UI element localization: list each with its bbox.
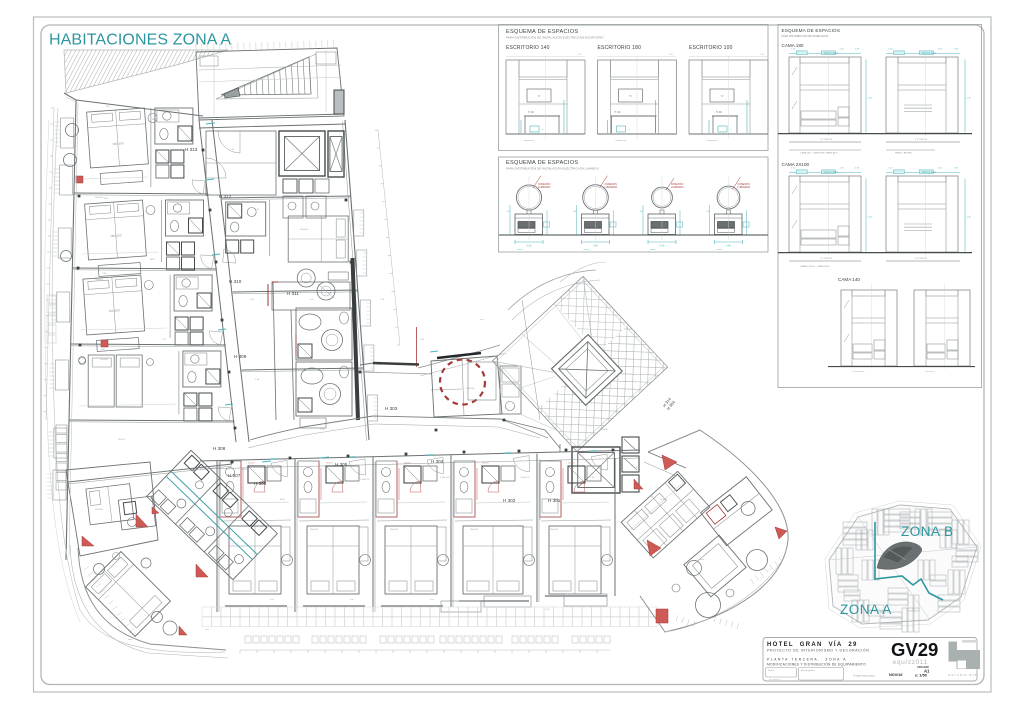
svg-text:180x200: 180x200 — [108, 308, 120, 313]
svg-text:1.40x0.70: 1.40x0.70 — [520, 477, 530, 479]
svg-text:CAMA 140: CAMA 140 — [838, 277, 860, 282]
svg-text:H 302: H 302 — [503, 498, 516, 503]
svg-text:MOD: MOD — [152, 119, 157, 121]
svg-text:H 305: H 305 — [335, 462, 348, 467]
svg-text:GV29: GV29 — [891, 639, 938, 660]
svg-text:H. 90: H. 90 — [615, 111, 621, 114]
svg-text:xxxxxxx xx: xxxxxxx xx — [707, 140, 718, 142]
svg-text:ZONA B: ZONA B — [901, 524, 954, 539]
svg-text:ESQUEMA DE ESPACIOS: ESQUEMA DE ESPACIOS — [782, 28, 841, 33]
svg-text:H 310: H 310 — [229, 279, 242, 284]
svg-text:xxxxxxx xx: xxxxxxx xx — [616, 140, 627, 142]
svg-text:180x200: 180x200 — [470, 529, 479, 531]
svg-text:0.60: 0.60 — [660, 245, 665, 248]
svg-text:PARA DISTRIBUCIÓN DE INSTALACI: PARA DISTRIBUCIÓN DE INSTALACIÓN ELÉCTRI… — [506, 35, 604, 40]
svg-text:H. 90: H. 90 — [716, 111, 722, 114]
svg-text:ESCRITORIO 100: ESCRITORIO 100 — [689, 45, 733, 51]
svg-text:© xxxxx xxxxx xxxxx: © xxxxx xxxxx xxxxx — [853, 675, 875, 678]
svg-text:VERDULERA: VERDULERA — [823, 52, 838, 55]
svg-text:160x200: 160x200 — [95, 509, 104, 511]
svg-text:VERDULERA: VERDULERA — [823, 171, 838, 174]
svg-text:ZONA A: ZONA A — [840, 602, 892, 617]
svg-text:H 313: H 313 — [185, 147, 198, 152]
svg-text:PANEL LATERAL: PANEL LATERAL — [895, 152, 913, 155]
svg-text:0.60: 0.60 — [726, 245, 731, 248]
svg-text:CAMA 180 + CABECERO PANELADO: CAMA 180 + CABECERO PANELADO — [800, 152, 838, 155]
svg-text:H 307: H 307 — [228, 473, 241, 478]
svg-text:H 306: H 306 — [254, 481, 267, 486]
svg-text:180x200: 180x200 — [310, 529, 319, 531]
svg-text:equ/zz011: equ/zz011 — [893, 659, 928, 666]
svg-text:x.x xxx xx: x.x xxx xx — [925, 371, 935, 373]
svg-text:140x70: 140x70 — [404, 463, 411, 465]
svg-text:1.40x0.70: 1.40x0.70 — [440, 477, 450, 479]
svg-text:180x200: 180x200 — [95, 197, 104, 199]
svg-text:H 304: H 304 — [431, 459, 444, 464]
svg-text:CONEXIÓN: CONEXIÓN — [671, 183, 684, 186]
svg-text:MOD: MOD — [280, 499, 285, 501]
svg-text:Fecha: Fecha — [768, 670, 775, 672]
svg-text:PLANTA TERCERA. ZONA A: PLANTA TERCERA. ZONA A — [767, 658, 847, 662]
svg-text:ESQUEMA DE ESPACIOS: ESQUEMA DE ESPACIOS — [506, 160, 578, 166]
svg-text:xxxxx: xxxxx — [717, 249, 723, 251]
svg-text:H 303: H 303 — [385, 406, 398, 411]
svg-text:H 301: H 301 — [548, 498, 561, 503]
svg-text:LUMINARIA: LUMINARIA — [738, 186, 751, 189]
svg-text:H 311: H 311 — [287, 291, 299, 296]
svg-text:CAMA 2X100: CAMA 2X100 — [782, 162, 810, 167]
svg-text:1.5 TOM TB: 1.5 TOM TB — [820, 258, 832, 260]
svg-text:e: 1/50: e: 1/50 — [915, 674, 927, 678]
svg-text:H 308: H 308 — [213, 446, 226, 451]
svg-text:1.5 TOM TB: 1.5 TOM TB — [820, 139, 832, 141]
svg-text:CONEXIÓN: CONEXIÓN — [538, 183, 551, 186]
svg-text:xxx xxxxxxx: xxx xxxxxxx — [769, 679, 781, 681]
svg-text:ESCRITORIO 140: ESCRITORIO 140 — [506, 45, 550, 51]
svg-text:180x200: 180x200 — [112, 141, 124, 146]
svg-text:180x200: 180x200 — [95, 111, 104, 113]
svg-text:140x70: 140x70 — [118, 439, 126, 441]
svg-text:180x190: 180x190 — [466, 388, 475, 390]
svg-text:CONEXIÓN: CONEXIÓN — [738, 183, 751, 186]
svg-text:1.5 TOM TB: 1.5 TOM TB — [915, 258, 927, 260]
svg-text:LUMINARIA: LUMINARIA — [671, 186, 684, 189]
svg-text:HOTEL GRAN VÍA 29: HOTEL GRAN VÍA 29 — [767, 640, 858, 648]
svg-text:140x70: 140x70 — [248, 463, 255, 465]
svg-text:MOD: MOD — [150, 259, 155, 261]
svg-text:140x70: 140x70 — [660, 499, 668, 501]
svg-text:MONTA: MONTA — [600, 428, 608, 431]
svg-text:VERDULERA: VERDULERA — [921, 171, 936, 174]
svg-text:MODIFICACIONES Y DISTRIBUCIÓN: MODIFICACIONES Y DISTRIBUCIÓN DE EQUIPAM… — [767, 662, 866, 667]
svg-text:180x200: 180x200 — [300, 229, 309, 231]
svg-text:TV: TV — [537, 95, 540, 98]
svg-text:CONEXIÓN: CONEXIÓN — [605, 183, 618, 186]
svg-text:xxxxx: xxxxx — [650, 249, 656, 251]
svg-text:HABITACIONES ZONA A: HABITACIONES ZONA A — [49, 32, 231, 49]
svg-text:CAMA 180: CAMA 180 — [782, 43, 804, 48]
svg-text:0.60: 0.60 — [593, 245, 598, 248]
svg-text:NOV/16: NOV/16 — [889, 673, 903, 677]
svg-text:140x70: 140x70 — [326, 463, 333, 465]
svg-text:0.60: 0.60 — [527, 245, 532, 248]
svg-text:VERDULERA: VERDULERA — [921, 52, 936, 55]
svg-text:x.x xxx xxxx: x.x xxx xxxx — [852, 371, 865, 373]
svg-text:180x200: 180x200 — [110, 233, 122, 238]
svg-text:H. 90: H. 90 — [528, 111, 534, 114]
svg-text:H 309: H 309 — [234, 354, 247, 359]
svg-text:180x200: 180x200 — [390, 529, 399, 531]
svg-text:TV: TV — [720, 95, 723, 98]
svg-text:140x70: 140x70 — [482, 463, 489, 465]
svg-text:xxxxx: xxxxx — [517, 249, 523, 251]
svg-text:140x70: 140x70 — [568, 463, 575, 465]
svg-text:xxxxxxx xx: xxxxxxx xx — [524, 140, 535, 142]
svg-text:PARA DISTRIBUCIÓN DE INSTALACI: PARA DISTRIBUCIÓN DE INSTALACIÓN ELÉCTRI… — [506, 166, 599, 171]
svg-text:LUMINARIA: LUMINARIA — [605, 186, 618, 189]
svg-text:Escala gráfica: Escala gráfica — [801, 669, 816, 672]
svg-text:ESTUDIO B76: ESTUDIO B76 — [949, 673, 978, 677]
svg-text:CAMAS 2X100 + CABECERO: CAMAS 2X100 + CABECERO — [800, 265, 830, 268]
svg-text:LUMINARIA: LUMINARIA — [538, 186, 551, 189]
svg-text:TV: TV — [629, 95, 632, 98]
svg-text:ESQUEMA DE ESPACIOS: ESQUEMA DE ESPACIOS — [506, 29, 578, 35]
svg-text:xxxxx: xxxxx — [584, 249, 590, 251]
svg-text:PROYECTO DE INTERIORISMO Y DEC: PROYECTO DE INTERIORISMO Y DECORACIÓN — [767, 648, 869, 653]
svg-text:180x200: 180x200 — [550, 529, 559, 531]
svg-text:100x200: 100x200 — [100, 359, 109, 361]
svg-text:A.S.: A.S. — [636, 466, 640, 469]
svg-text:ESCRITORIO 180: ESCRITORIO 180 — [598, 45, 642, 51]
svg-text:1.40x0.70: 1.40x0.70 — [360, 479, 370, 481]
svg-text:180x200: 180x200 — [95, 279, 104, 281]
svg-text:1.61,81: 1.61,81 — [240, 469, 248, 471]
svg-text:H 312: H 312 — [219, 194, 232, 199]
svg-text:1.5 TOM TB: 1.5 TOM TB — [915, 139, 927, 141]
